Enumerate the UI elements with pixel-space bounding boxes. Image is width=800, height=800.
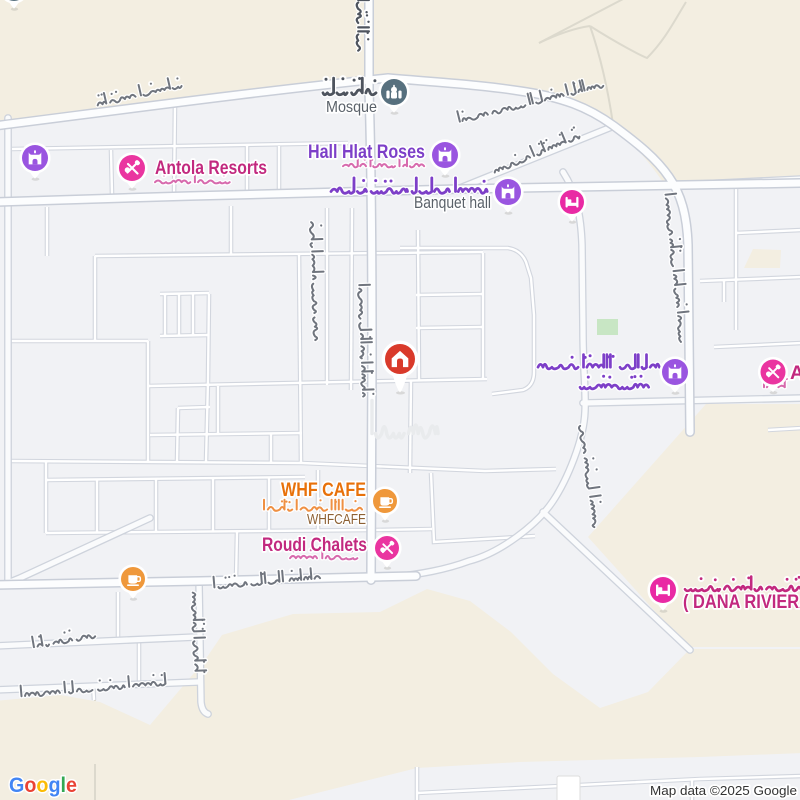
svg-text:Antola Resorts: Antola Resorts — [155, 157, 267, 179]
svg-text:WHF CAFE: WHF CAFE — [281, 480, 366, 501]
svg-text:Banquet hall: Banquet hall — [414, 193, 491, 212]
svg-text:Hall Hlat Roses: Hall Hlat Roses — [308, 141, 425, 163]
svg-text:An: An — [790, 362, 800, 384]
svg-text:Map data ©2025 Google: Map data ©2025 Google — [650, 783, 797, 798]
svg-text:WHFCAFE: WHFCAFE — [307, 511, 366, 528]
svg-text:( DANA RIVIERA: ( DANA RIVIERA — [683, 591, 800, 613]
svg-text:Roudi Chalets: Roudi Chalets — [262, 534, 367, 556]
svg-text:Google: Google — [9, 774, 77, 797]
svg-text:Mosque: Mosque — [326, 99, 377, 116]
